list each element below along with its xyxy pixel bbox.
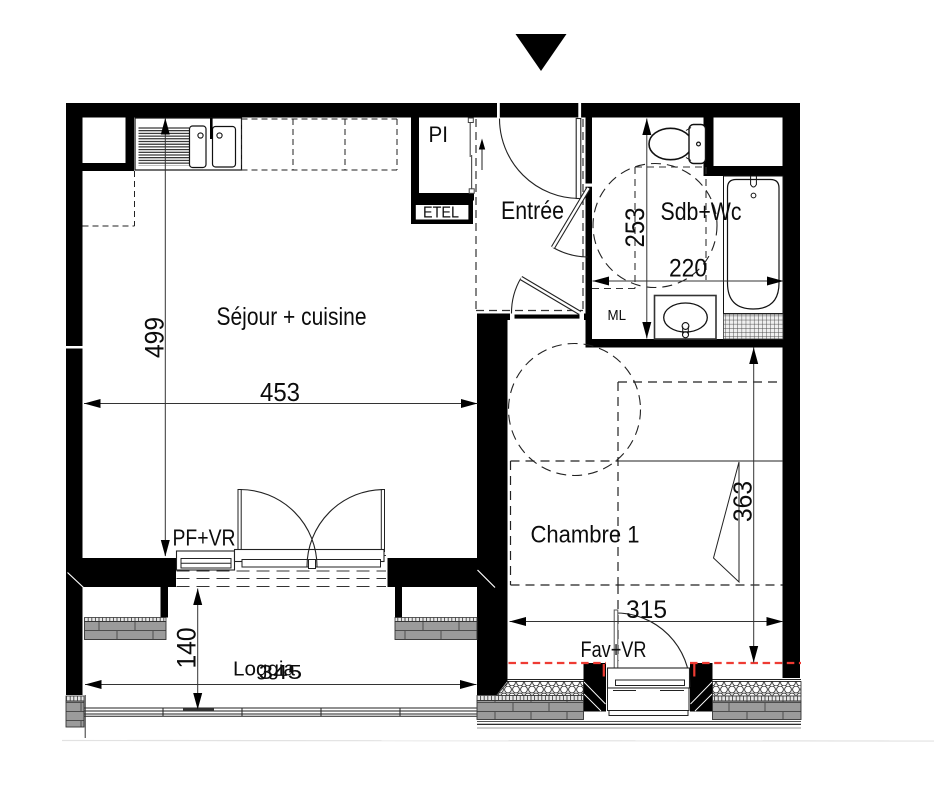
svg-text:Chambre 1: Chambre 1: [531, 522, 640, 549]
svg-text:Loggia: Loggia: [233, 658, 296, 681]
svg-text:Séjour + cuisine: Séjour + cuisine: [217, 303, 367, 331]
svg-text:Sdb+Wc: Sdb+Wc: [661, 198, 742, 226]
svg-text:PI: PI: [429, 122, 449, 147]
svg-text:ETEL: ETEL: [423, 205, 459, 222]
svg-text:453: 453: [260, 377, 300, 407]
svg-text:363: 363: [728, 481, 758, 522]
svg-text:Entrée: Entrée: [501, 197, 564, 225]
svg-text:Fav+VR: Fav+VR: [581, 637, 647, 662]
svg-text:253: 253: [620, 208, 650, 248]
svg-text:315: 315: [626, 596, 667, 624]
svg-text:ML: ML: [608, 307, 627, 324]
svg-text:140: 140: [172, 628, 202, 669]
svg-text:PF+VR: PF+VR: [173, 525, 236, 551]
svg-text:499: 499: [140, 317, 170, 358]
svg-text:220: 220: [669, 255, 707, 283]
